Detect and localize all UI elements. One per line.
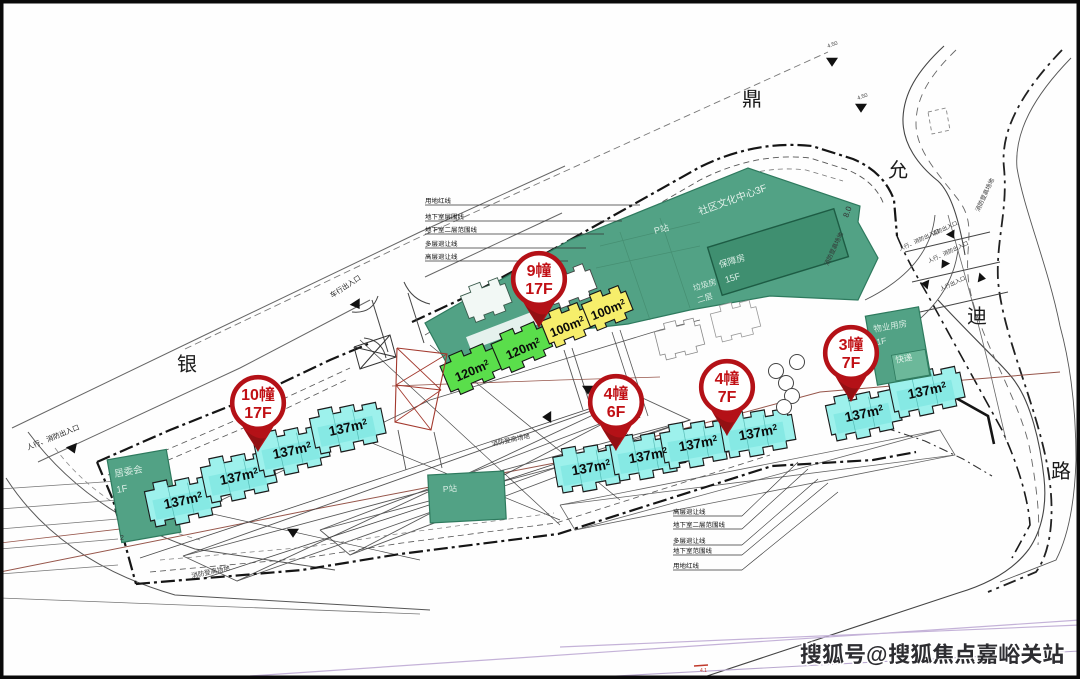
- svg-text:10: 10: [241, 387, 259, 404]
- svg-text:9: 9: [527, 263, 536, 280]
- svg-text:17F: 17F: [525, 281, 553, 298]
- svg-text:4: 4: [715, 371, 724, 388]
- svg-text:@: @: [866, 642, 887, 667]
- svg-text:4.1: 4.1: [700, 668, 707, 674]
- svg-text:4: 4: [604, 386, 613, 403]
- svg-text:1F: 1F: [116, 483, 129, 496]
- svg-text:6F: 6F: [607, 404, 626, 421]
- svg-text:2: 2: [120, 535, 124, 542]
- svg-text:7F: 7F: [842, 355, 861, 372]
- svg-text:7F: 7F: [718, 389, 737, 406]
- svg-text:3: 3: [839, 337, 848, 354]
- svg-text:17F: 17F: [244, 405, 272, 422]
- svg-text:P: P: [443, 484, 450, 494]
